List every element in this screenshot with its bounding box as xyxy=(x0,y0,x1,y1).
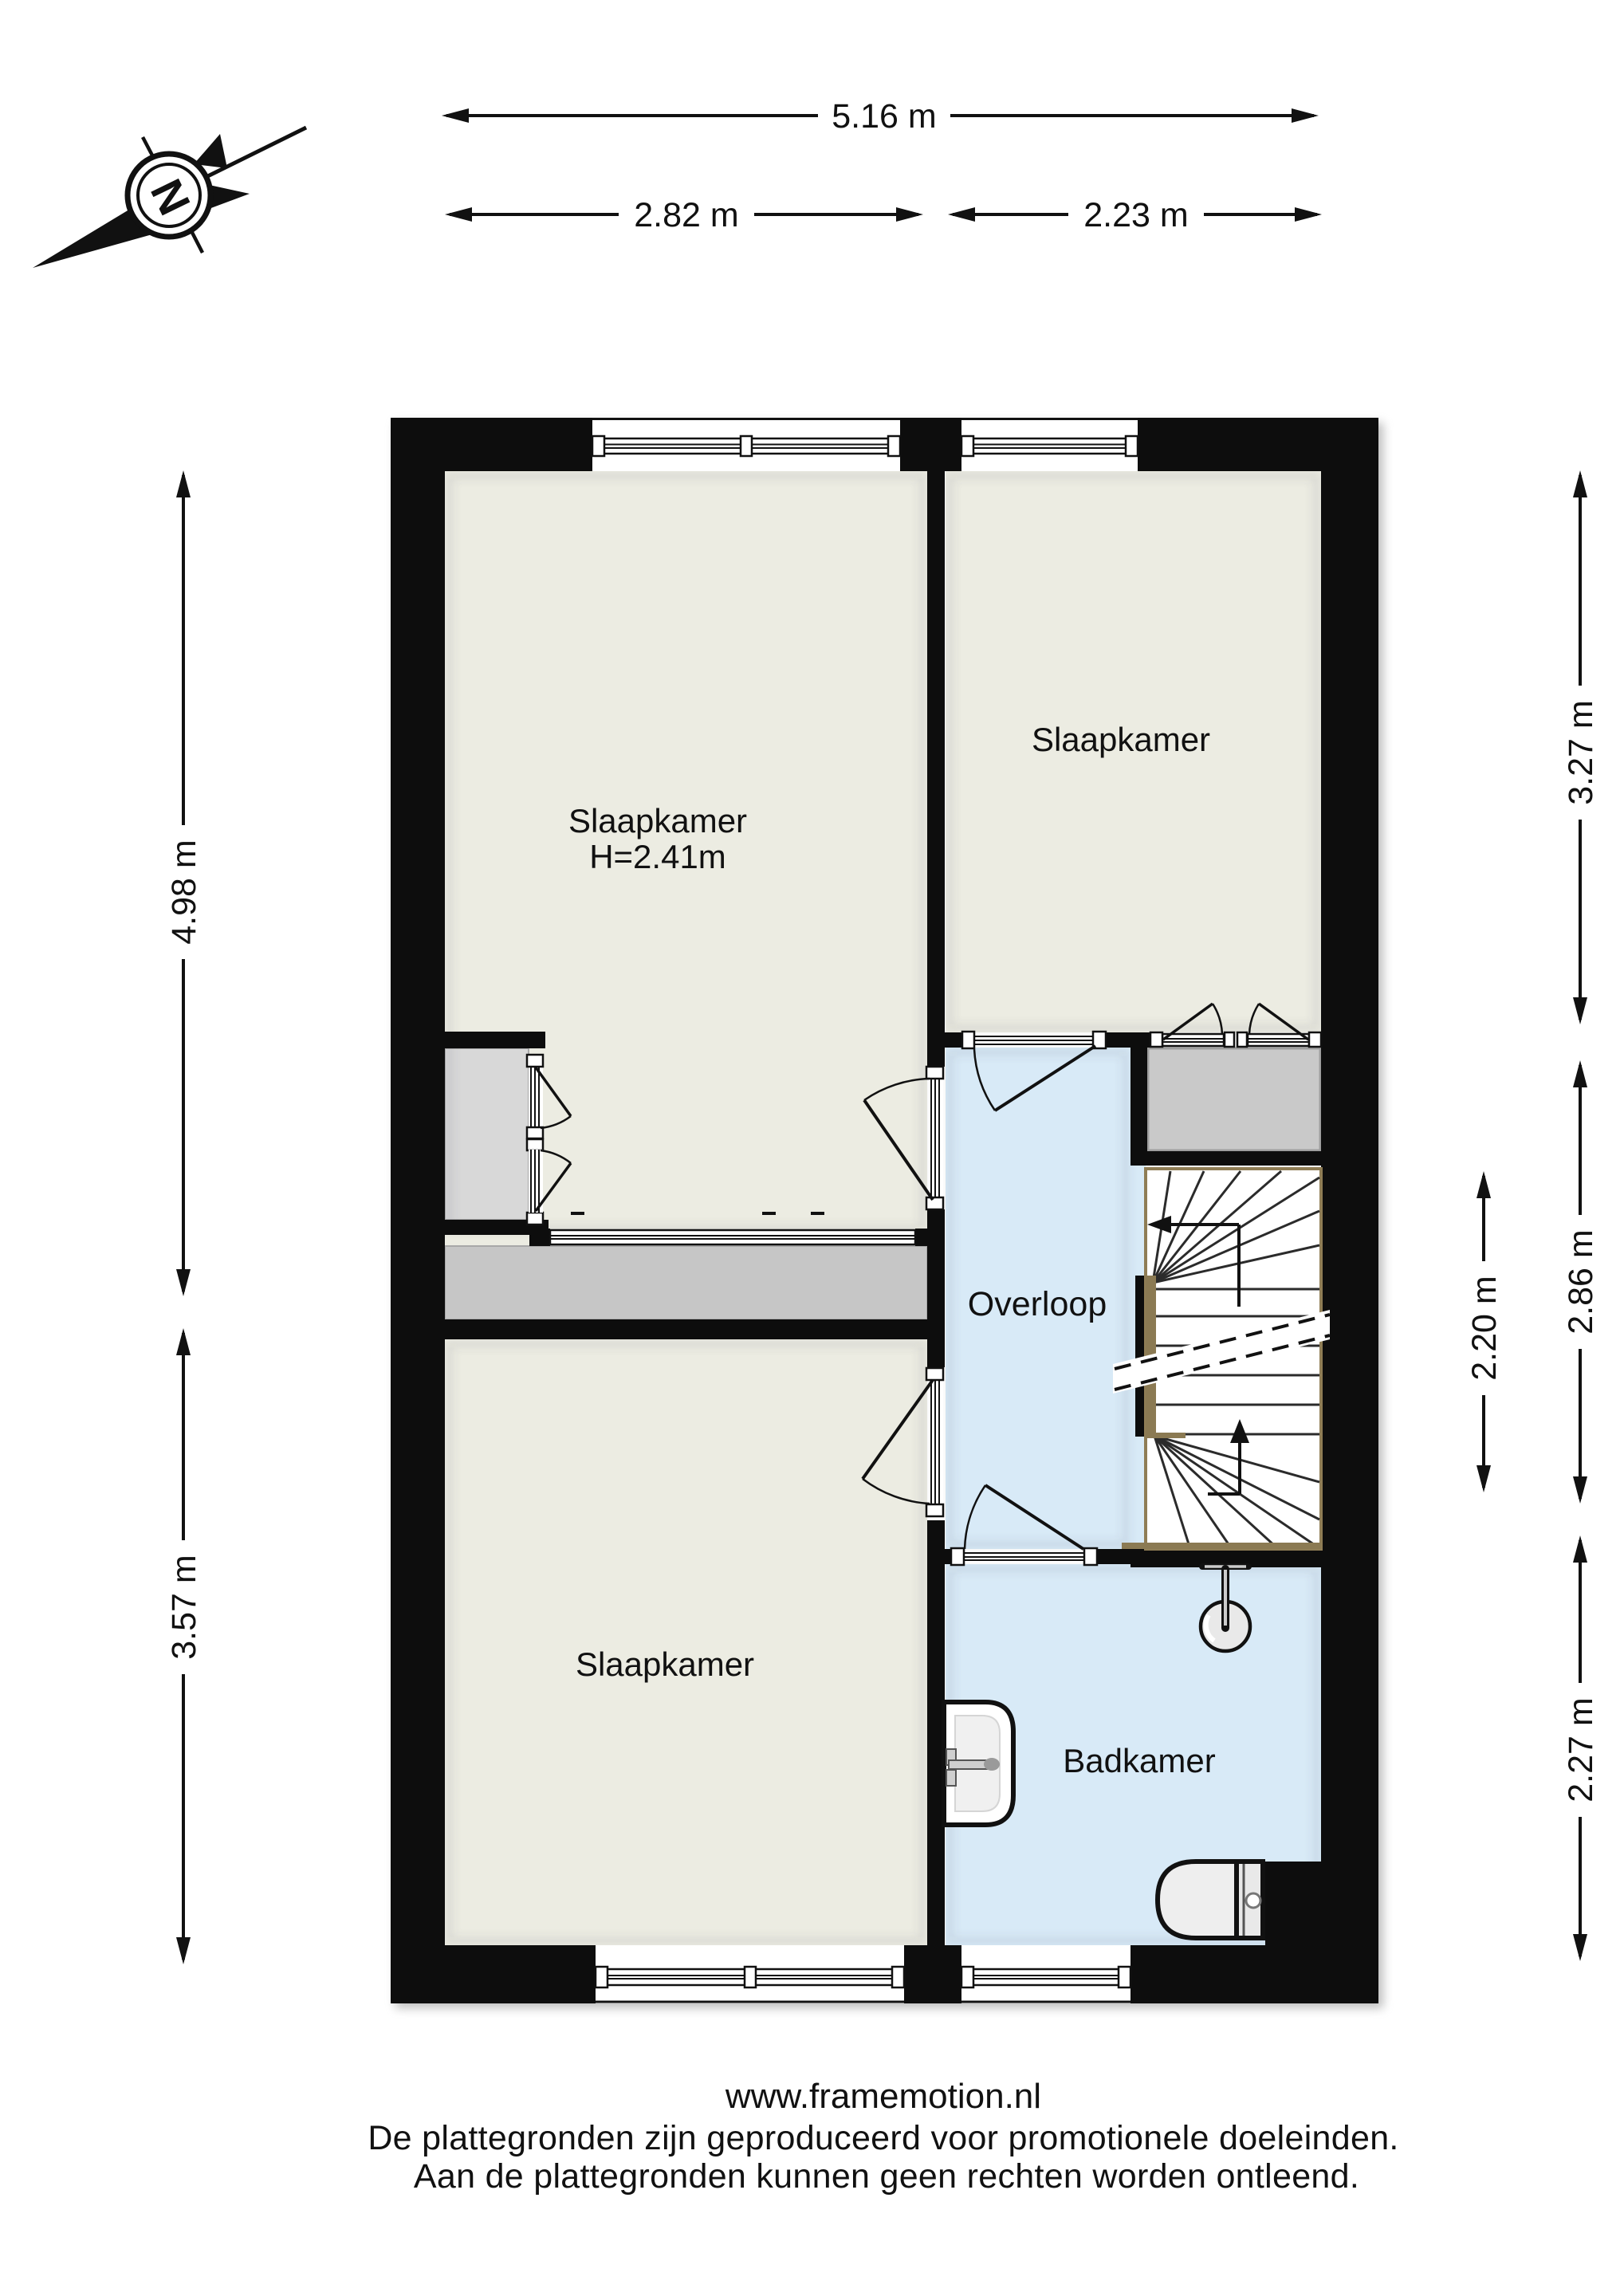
svg-text:Badkamer: Badkamer xyxy=(1063,1742,1215,1779)
svg-text:Slaapkamer: Slaapkamer xyxy=(568,802,747,839)
svg-text:Slaapkamer: Slaapkamer xyxy=(576,1645,754,1683)
svg-text:www.framemotion.nl: www.framemotion.nl xyxy=(725,2077,1041,2116)
svg-text:2.20 m: 2.20 m xyxy=(1465,1276,1504,1380)
svg-text:3.57 m: 3.57 m xyxy=(165,1555,203,1659)
svg-text:2.23 m: 2.23 m xyxy=(1083,196,1188,234)
svg-text:5.16 m: 5.16 m xyxy=(832,97,936,136)
svg-text:2.82 m: 2.82 m xyxy=(634,196,738,234)
svg-text:3.27 m: 3.27 m xyxy=(1562,700,1600,804)
svg-text:Overloop: Overloop xyxy=(968,1285,1107,1323)
svg-text:2.27 m: 2.27 m xyxy=(1562,1697,1600,1802)
svg-text:De plattegronden zijn geproduc: De plattegronden zijn geproduceerd voor … xyxy=(368,2119,1398,2157)
svg-text:2.86 m: 2.86 m xyxy=(1562,1229,1600,1334)
svg-text:4.98 m: 4.98 m xyxy=(165,839,203,944)
svg-text:Aan de plattegronden kunnen ge: Aan de plattegronden kunnen geen rechten… xyxy=(414,2157,1359,2196)
svg-text:H=2.41m: H=2.41m xyxy=(589,838,726,875)
svg-text:Slaapkamer: Slaapkamer xyxy=(1032,721,1210,758)
